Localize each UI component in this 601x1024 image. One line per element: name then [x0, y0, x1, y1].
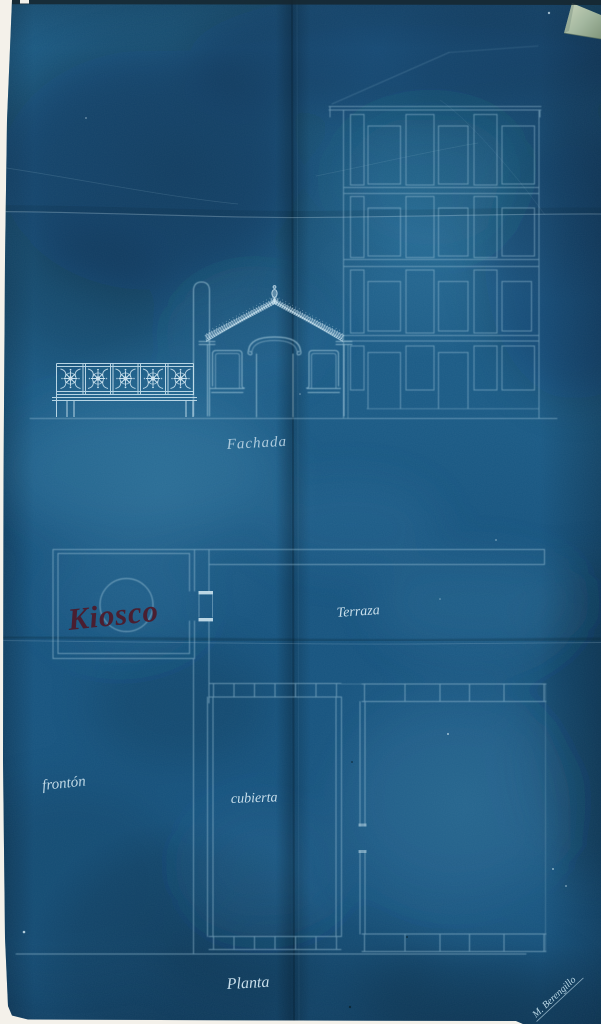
- svg-text:Terraza: Terraza: [336, 603, 380, 621]
- svg-text:Fachada: Fachada: [225, 434, 287, 453]
- svg-text:Planta: Planta: [225, 974, 270, 993]
- svg-text:cubierta: cubierta: [231, 790, 278, 807]
